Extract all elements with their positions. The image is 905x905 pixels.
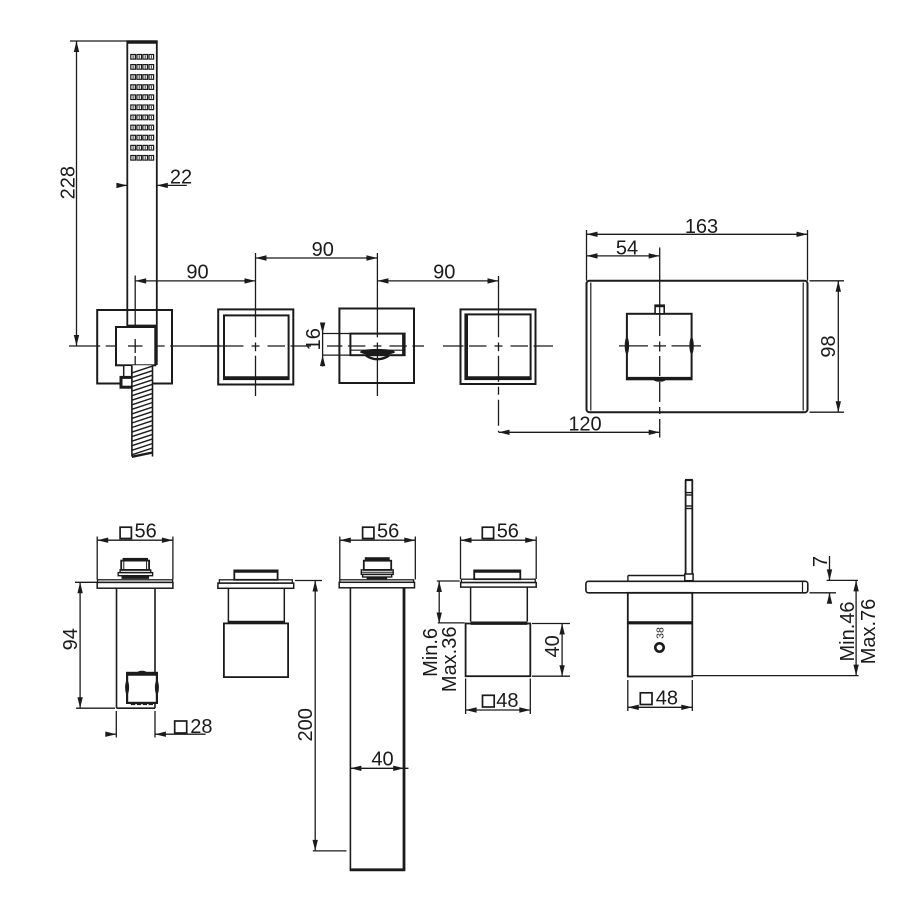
svg-text:90: 90 [312, 239, 334, 261]
svg-text:16: 16 [303, 328, 325, 350]
svg-text:40: 40 [371, 749, 393, 771]
svg-text:98: 98 [818, 335, 840, 357]
svg-text:48: 48 [656, 687, 678, 709]
svg-text:40: 40 [542, 635, 564, 657]
svg-text:22: 22 [170, 166, 192, 188]
svg-text:48: 48 [496, 690, 518, 712]
svg-text:94: 94 [60, 628, 82, 650]
svg-text:56: 56 [497, 521, 519, 543]
svg-text:Max.76: Max.76 [858, 599, 880, 665]
svg-text:Max.36: Max.36 [439, 627, 461, 693]
svg-text:56: 56 [377, 521, 399, 543]
svg-text:90: 90 [186, 261, 208, 283]
svg-text:163: 163 [685, 216, 718, 238]
svg-text:200: 200 [295, 708, 317, 741]
svg-text:228: 228 [58, 166, 80, 199]
svg-text:7: 7 [810, 556, 832, 567]
svg-text:120: 120 [568, 414, 601, 436]
svg-text:54: 54 [616, 237, 638, 259]
svg-text:28: 28 [190, 716, 212, 738]
svg-text:Min.46: Min.46 [837, 601, 859, 661]
svg-text:56: 56 [135, 521, 157, 543]
svg-text:38: 38 [654, 627, 666, 639]
svg-text:90: 90 [433, 261, 455, 283]
